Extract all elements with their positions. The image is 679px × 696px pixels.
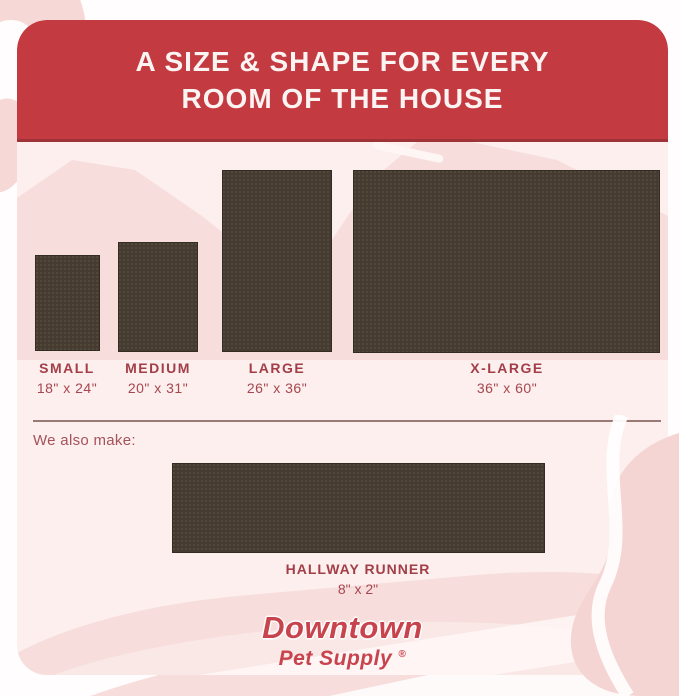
small-mat-swatch — [35, 255, 100, 351]
medium-size-dimensions: 20" x 31" — [98, 380, 218, 396]
medium-size-label: MEDIUM 20" x 31" — [98, 360, 218, 396]
medium-size-name: MEDIUM — [98, 360, 218, 376]
large-size-label: LARGE 26" x 36" — [217, 360, 337, 396]
infographic-canvas: A SIZE & SHAPE FOR EVERY ROOM OF THE HOU… — [0, 0, 679, 696]
brand-tagline-text: Pet Supply — [279, 647, 393, 670]
hallway-runner-swatch — [172, 463, 545, 553]
hallway-runner-label: HALLWAY RUNNER 8" x 2" — [258, 561, 458, 597]
large-size-dimensions: 26" x 36" — [217, 380, 337, 396]
bone-blob-decoration — [510, 415, 679, 696]
xlarge-size-name: X-LARGE — [447, 360, 567, 376]
large-size-name: LARGE — [217, 360, 337, 376]
large-mat-swatch — [222, 170, 332, 352]
registered-trademark-symbol: ® — [399, 649, 407, 660]
title-line-1: A SIZE & SHAPE FOR EVERY — [136, 43, 550, 80]
xlarge-size-dimensions: 36" x 60" — [447, 380, 567, 396]
xlarge-size-label: X-LARGE 36" x 60" — [447, 360, 567, 396]
also-make-intro: We also make: — [33, 432, 136, 449]
xlarge-mat-swatch — [353, 170, 660, 353]
title-banner: A SIZE & SHAPE FOR EVERY ROOM OF THE HOU… — [17, 20, 668, 142]
medium-mat-swatch — [118, 242, 198, 352]
title-line-2: ROOM OF THE HOUSE — [182, 80, 504, 117]
hallway-runner-name: HALLWAY RUNNER — [258, 561, 458, 577]
hallway-runner-dimensions: 8" x 2" — [258, 581, 458, 597]
